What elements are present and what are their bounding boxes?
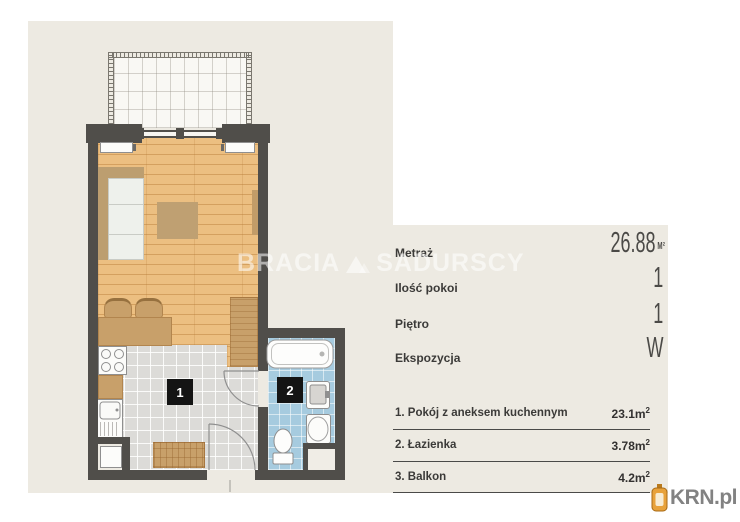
detail-label-exposure: Ekspozycja <box>395 351 460 365</box>
sofa-seats <box>108 178 144 260</box>
floor-value: 1 <box>653 300 663 329</box>
sofa-cushion-line <box>109 204 143 205</box>
wall-bathroom-left-upper <box>258 338 268 371</box>
window-post-center <box>176 128 184 139</box>
sofa-back <box>98 167 108 260</box>
sofa-armrest <box>98 167 144 178</box>
floor-plan-page: { "watermark": { "left": "BRACIA", "righ… <box>0 0 740 522</box>
brand-watermark: BRACIA SADURSCY <box>237 249 525 278</box>
watermark-left-text: BRACIA <box>237 249 340 278</box>
room-row-area: 23.1m2 <box>612 406 650 421</box>
wall-niche-stub-h <box>93 437 130 444</box>
room-row-name: 1. Pokój z aneksem kuchennym <box>395 407 568 419</box>
room-row-area: 4.2m2 <box>618 470 650 485</box>
detail-value-exposure: W <box>646 334 665 363</box>
chair-right <box>135 298 163 318</box>
wall-left <box>88 124 98 480</box>
area-value: 26.88 <box>610 229 655 258</box>
kitchen-counter <box>98 375 123 399</box>
room-row-name: 3. Balkon <box>395 471 446 483</box>
window-post-left <box>138 128 144 139</box>
balcony-railing-top <box>108 52 252 58</box>
shower-basin <box>306 414 331 444</box>
room-label-2: 2 <box>277 377 303 403</box>
hall-cabinet <box>153 442 205 468</box>
radiator-right <box>225 142 255 153</box>
bathroom-niche-floor <box>308 449 335 470</box>
room-label-1: 1 <box>167 379 193 405</box>
balcony-railing-left <box>108 52 114 128</box>
lantern-icon <box>651 484 668 512</box>
list-divider <box>393 461 650 462</box>
detail-label-rooms: Ilość pokoi <box>395 281 458 295</box>
room-1-number: 1 <box>176 385 183 400</box>
detail-label-floor: Piętro <box>395 317 429 331</box>
radiator-left <box>100 142 133 153</box>
wardrobe <box>230 297 258 367</box>
balcony-railing-right <box>246 52 252 128</box>
krn-logo: KRN.pl <box>651 484 737 512</box>
window-post-right <box>216 128 222 139</box>
wall-niche-stub-v <box>122 444 130 470</box>
room-2-number: 2 <box>286 383 293 398</box>
wall-bath-niche-v <box>303 449 308 470</box>
room-row-name: 2. Łazienka <box>395 439 456 451</box>
balcony <box>114 58 246 128</box>
wall-right-upper <box>258 124 268 338</box>
list-divider <box>393 429 650 430</box>
stove <box>98 346 127 375</box>
exposure-value: W <box>646 334 663 363</box>
wall-bathroom-left-lower <box>258 407 268 470</box>
area-unit: M² <box>657 232 665 261</box>
sofa-cushion-line <box>109 234 143 235</box>
sink-drainer <box>100 422 120 436</box>
watermark-right-text: SADURSCY <box>376 249 524 278</box>
washing-machine <box>100 446 122 468</box>
wall-bottom-left <box>88 470 207 480</box>
mountains-icon <box>345 254 371 274</box>
chair-left <box>104 298 132 318</box>
list-divider <box>393 492 650 493</box>
wall-bottom-right <box>255 470 345 480</box>
coffee-table <box>157 202 198 239</box>
room-row-area: 3.78m2 <box>612 438 650 453</box>
detail-value-area: 26.88M² <box>610 229 665 261</box>
radiator-valve-left <box>133 144 136 151</box>
rooms-value: 1 <box>653 264 663 293</box>
wall-bathroom-top <box>258 328 345 338</box>
detail-value-floor: 1 <box>653 300 665 329</box>
dining-table <box>98 317 172 346</box>
detail-value-rooms: 1 <box>653 264 665 293</box>
radiator-valve-right <box>221 144 224 151</box>
wall-pier-left <box>86 124 142 143</box>
krn-logo-text: KRN.pl <box>670 484 737 512</box>
washbasin <box>306 381 330 409</box>
wall-bathroom-right <box>335 338 345 480</box>
